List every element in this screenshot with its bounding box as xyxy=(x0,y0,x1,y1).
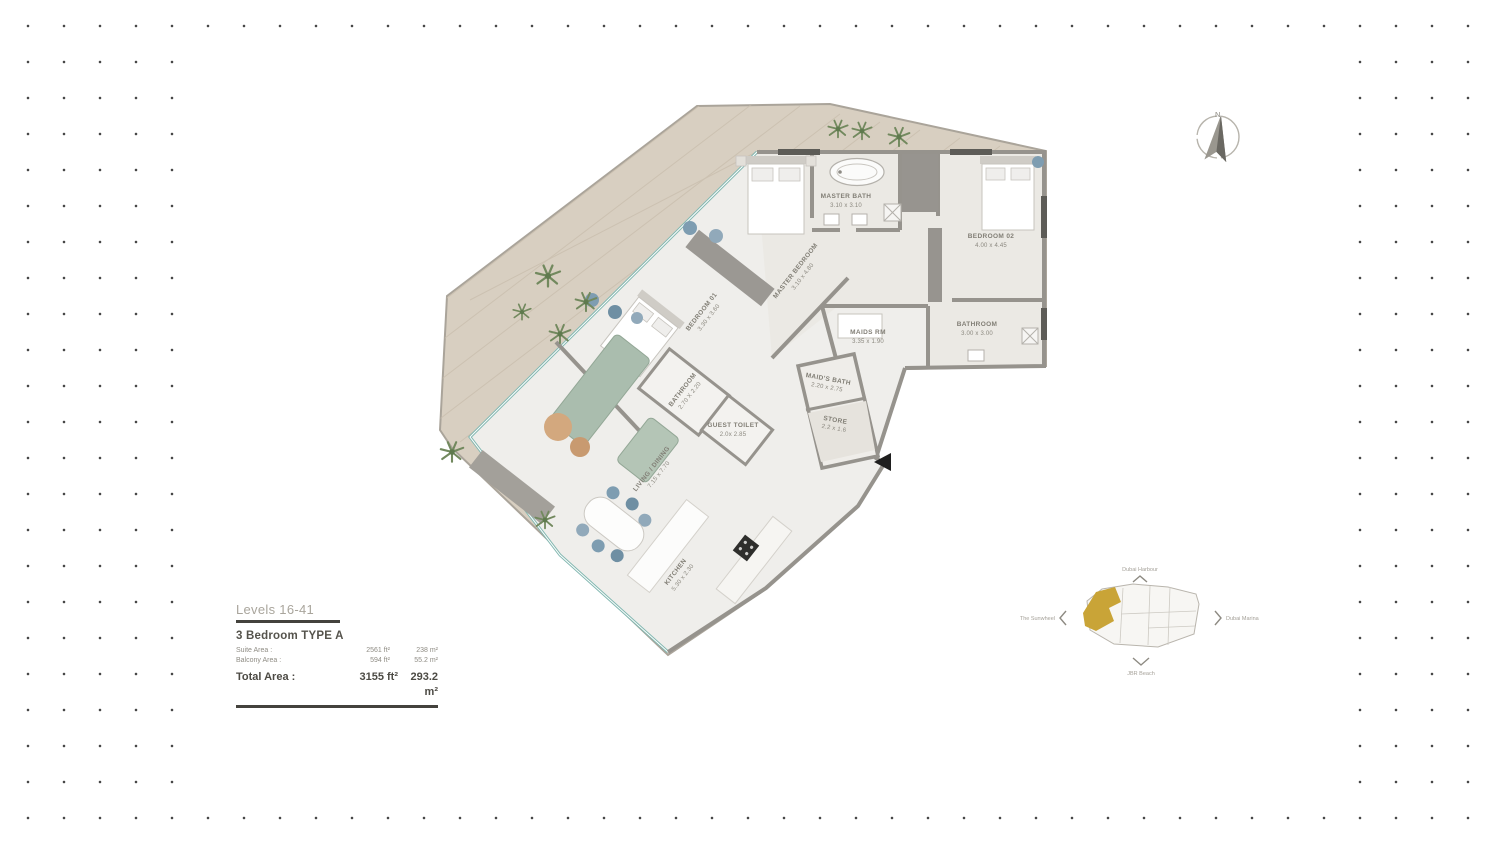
master-bed xyxy=(736,156,816,234)
levels-underline xyxy=(236,620,340,623)
levels-label: Levels 16-41 xyxy=(236,602,438,620)
svg-text:GUEST TOILET: GUEST TOILET xyxy=(707,422,758,429)
key-plan: Dubai Harbour JBR Beach The Sunwheel Dub… xyxy=(1020,567,1260,677)
balcony-area-m: 55.2 m² xyxy=(390,656,438,667)
balcony-area-ft: 594 ft² xyxy=(308,656,390,667)
suite-area-row: Suite Area : 2561 ft² 238 m² xyxy=(236,646,438,657)
total-area-ft: 3155 ft² xyxy=(308,670,398,685)
total-area-row: Total Area : 3155 ft² 293.2 m² xyxy=(236,670,438,701)
svg-text:4.00 x 4.45: 4.00 x 4.45 xyxy=(975,243,1007,249)
floor-plan-canvas: MASTER BATH3.10 x 3.10 BEDROOM 024.00 x … xyxy=(0,0,1500,842)
svg-text:MASTER BATH: MASTER BATH xyxy=(821,193,872,200)
chevron-up-icon xyxy=(1133,576,1147,582)
svg-text:3.35 x 1.90: 3.35 x 1.90 xyxy=(852,339,884,345)
svg-text:BEDROOM 02: BEDROOM 02 xyxy=(968,233,1015,240)
bedroom-02-bed xyxy=(980,156,1044,230)
total-area-m: 293.2 m² xyxy=(398,670,438,701)
suite-area-ft: 2561 ft² xyxy=(308,646,390,657)
key-plan-label-bottom: JBR Beach xyxy=(1127,671,1155,677)
panel-bottom-rule xyxy=(236,705,438,708)
suite-area-label: Suite Area : xyxy=(236,646,308,657)
svg-text:3.10 x 3.10: 3.10 x 3.10 xyxy=(830,203,862,209)
coffee-table-small xyxy=(570,437,590,457)
chevron-right-icon xyxy=(1215,611,1221,625)
chevron-down-icon xyxy=(1133,658,1149,665)
key-plan-label-left: The Sunwheel xyxy=(1020,616,1055,622)
bedroom-02-chair xyxy=(1032,156,1044,168)
total-area-label: Total Area : xyxy=(236,670,308,685)
unit-info-panel: Levels 16-41 3 Bedroom TYPE A Suite Area… xyxy=(236,602,438,708)
chevron-left-icon xyxy=(1060,611,1066,625)
svg-text:MAIDS RM: MAIDS RM xyxy=(850,329,886,336)
svg-text:BATHROOM: BATHROOM xyxy=(957,321,998,328)
balcony-area-label: Balcony Area : xyxy=(236,656,308,667)
bathtub xyxy=(830,159,884,186)
coffee-table xyxy=(544,413,572,441)
compass: N xyxy=(1197,110,1239,162)
key-plan-label-right: Dubai Marina xyxy=(1226,616,1260,622)
key-plan-label-top: Dubai Harbour xyxy=(1122,567,1158,573)
svg-text:3.00 x 3.00: 3.00 x 3.00 xyxy=(961,331,993,337)
balcony-area-row: Balcony Area : 594 ft² 55.2 m² xyxy=(236,656,438,667)
unit-type-label: 3 Bedroom TYPE A xyxy=(236,630,438,642)
suite-area-m: 238 m² xyxy=(390,646,438,657)
svg-text:2.0x 2.85: 2.0x 2.85 xyxy=(720,432,747,438)
